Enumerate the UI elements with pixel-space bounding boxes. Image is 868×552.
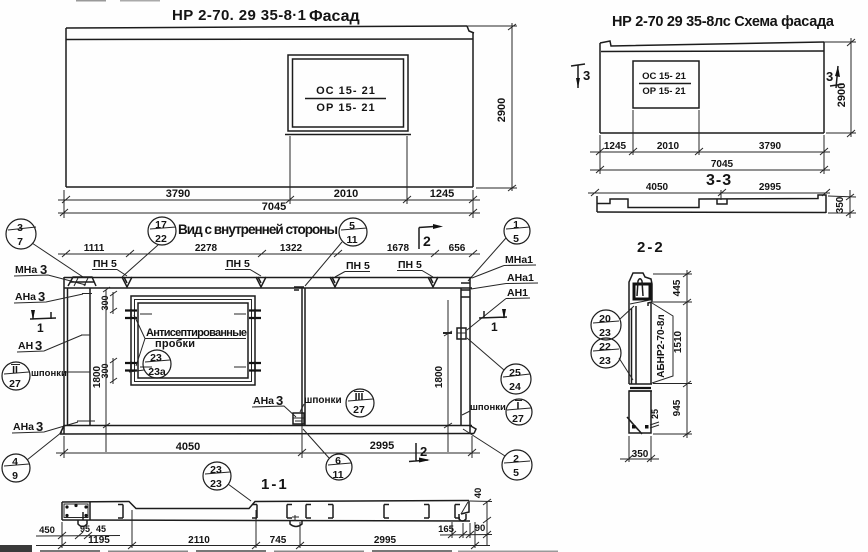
svg-text:АН: АН: [18, 340, 33, 352]
svg-text:3: 3: [583, 68, 590, 83]
svg-text:90: 90: [475, 523, 486, 534]
svg-text:шпонки: шпонки: [304, 395, 342, 406]
svg-text:2010: 2010: [657, 141, 680, 152]
svg-text:6: 6: [335, 455, 341, 467]
svg-text:2010: 2010: [334, 188, 358, 200]
svg-text:9: 9: [12, 470, 18, 482]
svg-text:I: I: [517, 400, 520, 412]
svg-text:745: 745: [270, 535, 287, 546]
svg-text:АН1: АН1: [507, 287, 528, 299]
svg-text:23: 23: [210, 478, 222, 490]
svg-text:11: 11: [332, 469, 343, 481]
svg-text:ПН 5: ПН 5: [226, 258, 250, 270]
svg-text:3: 3: [17, 222, 23, 234]
svg-text:23а: 23а: [148, 366, 166, 378]
svg-text:300: 300: [100, 295, 110, 310]
svg-text:95: 95: [80, 524, 90, 534]
svg-text:3: 3: [826, 69, 833, 84]
svg-text:23: 23: [210, 464, 222, 476]
svg-text:Фасад: Фасад: [309, 8, 360, 25]
svg-text:4: 4: [12, 456, 18, 468]
svg-text:350: 350: [632, 449, 649, 460]
svg-text:пробки: пробки: [155, 338, 195, 350]
svg-text:165: 165: [438, 524, 455, 535]
svg-text:945: 945: [672, 399, 683, 416]
svg-text:ОР 15- 21: ОР 15- 21: [642, 86, 686, 97]
svg-text:НР 2-70 29 35-8лс Схема фасада: НР 2-70 29 35-8лс Схема фасада: [612, 14, 835, 30]
svg-text:2995: 2995: [759, 182, 782, 193]
svg-text:23: 23: [599, 327, 611, 339]
svg-text:АНа: АНа: [15, 291, 36, 303]
svg-text:III: III: [355, 391, 364, 403]
svg-text:25: 25: [650, 409, 660, 419]
svg-text:5: 5: [349, 220, 355, 232]
svg-text:1678: 1678: [387, 243, 410, 254]
svg-text:ОС 15- 21: ОС 15- 21: [642, 71, 687, 82]
svg-text:40: 40: [473, 488, 484, 499]
svg-text:20: 20: [599, 313, 611, 325]
svg-text:45: 45: [96, 524, 106, 534]
svg-text:22: 22: [599, 341, 611, 353]
svg-text:27: 27: [353, 404, 365, 416]
svg-text:27: 27: [9, 378, 21, 390]
svg-text:2110: 2110: [188, 535, 210, 546]
svg-text:шпонки: шпонки: [470, 402, 506, 413]
svg-text:1245: 1245: [430, 188, 454, 200]
svg-text:25: 25: [509, 367, 521, 379]
svg-text:11: 11: [346, 234, 357, 246]
svg-text:ОС 15- 21: ОС 15- 21: [316, 85, 376, 97]
svg-text:2900: 2900: [836, 83, 848, 107]
svg-text:ПН 5: ПН 5: [398, 259, 422, 271]
svg-text:24: 24: [509, 381, 521, 393]
svg-text:АНа: АНа: [253, 395, 274, 407]
svg-text:1510: 1510: [673, 330, 684, 353]
svg-text:1: 1: [513, 219, 519, 231]
svg-text:II: II: [12, 364, 18, 376]
svg-text:МНа: МНа: [15, 264, 37, 276]
svg-text:ПН 5: ПН 5: [346, 260, 370, 272]
svg-text:22: 22: [155, 233, 167, 245]
svg-text:Вид с внутренней стороны: Вид с внутренней стороны: [178, 222, 338, 237]
svg-text:АНа: АНа: [13, 421, 34, 433]
svg-text:1322: 1322: [280, 243, 303, 254]
svg-text:АБНР2-70-8л: АБНР2-70-8л: [656, 314, 667, 378]
svg-text:1245: 1245: [604, 141, 627, 152]
svg-text:2995: 2995: [374, 535, 397, 546]
svg-text:2: 2: [423, 233, 431, 249]
svg-text:2: 2: [513, 453, 519, 465]
svg-text:656: 656: [449, 243, 466, 254]
svg-text:5: 5: [513, 467, 519, 479]
svg-text:АНа1: АНа1: [507, 272, 534, 284]
svg-text:1800: 1800: [92, 365, 103, 388]
svg-text:5: 5: [513, 233, 519, 245]
svg-text:2: 2: [420, 444, 427, 459]
svg-text:350: 350: [835, 196, 846, 213]
svg-text:7: 7: [17, 236, 23, 248]
svg-text:ПН 5: ПН 5: [93, 258, 117, 270]
svg-text:2278: 2278: [195, 243, 218, 254]
svg-text:7045: 7045: [711, 159, 734, 170]
svg-text:4050: 4050: [646, 182, 669, 193]
svg-text:23: 23: [599, 355, 611, 367]
svg-text:1111: 1111: [84, 243, 105, 254]
svg-text:2900: 2900: [496, 98, 508, 122]
svg-text:3790: 3790: [166, 188, 190, 200]
svg-text:3790: 3790: [759, 141, 782, 152]
svg-text:НР 2-70. 29 35-8·1: НР 2-70. 29 35-8·1: [172, 7, 306, 24]
svg-text:МНа1: МНа1: [505, 254, 533, 266]
svg-text:450: 450: [39, 525, 55, 536]
svg-text:ОР 15- 21: ОР 15- 21: [316, 102, 375, 114]
svg-text:2-2: 2-2: [637, 239, 665, 256]
svg-text:27: 27: [512, 413, 524, 425]
svg-text:7045: 7045: [262, 201, 286, 213]
svg-text:шпонки: шпонки: [31, 368, 67, 379]
svg-text:17: 17: [155, 219, 167, 231]
svg-text:1: 1: [37, 321, 44, 335]
svg-text:2995: 2995: [370, 440, 394, 452]
svg-text:23: 23: [150, 352, 162, 364]
svg-text:445: 445: [672, 279, 683, 296]
svg-text:1195: 1195: [88, 535, 110, 546]
svg-text:1-1: 1-1: [261, 476, 289, 493]
svg-text:1800: 1800: [434, 365, 445, 388]
svg-text:1: 1: [491, 320, 498, 334]
svg-text:4050: 4050: [176, 441, 200, 453]
svg-text:3-3: 3-3: [706, 172, 732, 189]
